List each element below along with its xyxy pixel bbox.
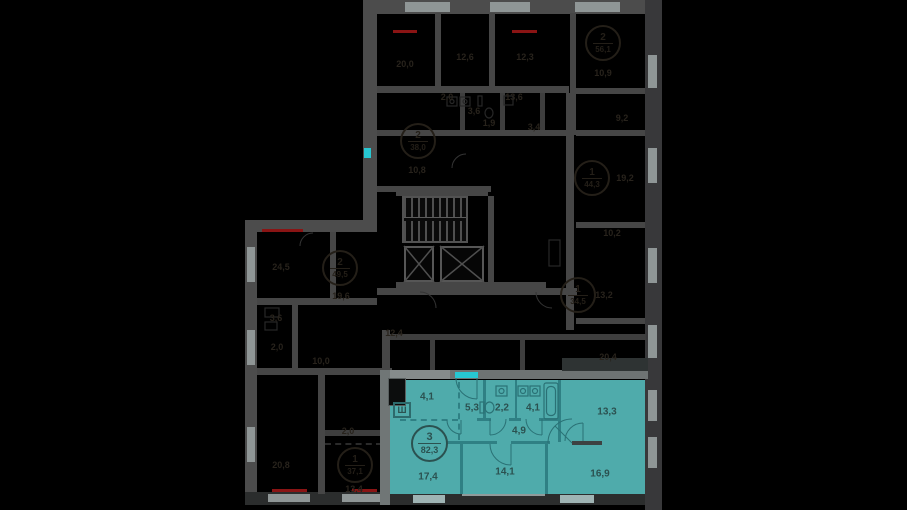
wall-segment xyxy=(292,305,298,371)
window-segment xyxy=(247,330,255,365)
room-area-label-dimmed: 13,6 xyxy=(505,92,523,102)
wall-segment xyxy=(576,318,645,324)
room-area-label-dimmed: 13,4 xyxy=(345,484,363,494)
room-area-label-dimmed: 10,0 xyxy=(312,356,330,366)
wall-segment xyxy=(377,86,569,93)
window-segment xyxy=(648,325,657,358)
apartment-badge-dimmed[interactable]: 134,5 xyxy=(560,277,596,313)
apartment-badge-dimmed[interactable]: 137,1 xyxy=(337,447,373,483)
room-area-label: 5,3 xyxy=(465,403,479,414)
wall-segment xyxy=(447,441,497,444)
room-area-label-dimmed: 24,5 xyxy=(272,262,290,272)
badge-rooms-count: 2 xyxy=(337,257,343,268)
badge-area: 37,1 xyxy=(345,465,365,477)
badge-area: 56,1 xyxy=(593,43,613,55)
wall-segment xyxy=(435,13,441,88)
badge-area: 38,0 xyxy=(408,141,428,153)
wall-segment xyxy=(460,444,463,494)
room-area-label-dimmed: 12,6 xyxy=(456,52,474,62)
badge-rooms-count: 1 xyxy=(352,454,358,465)
badge-area: 49,5 xyxy=(330,268,350,280)
window-segment xyxy=(648,437,657,468)
badge-area: 44,3 xyxy=(582,178,602,190)
room-area-label-dimmed: 12,3 xyxy=(516,52,534,62)
wall-segment xyxy=(363,0,377,232)
badge-rooms-count: 2 xyxy=(415,130,421,141)
room-area-label-dimmed: 3,6 xyxy=(270,313,283,323)
room-area-label-dimmed: 12,4 xyxy=(385,328,403,338)
wardrobe-box: Ш xyxy=(393,402,411,418)
wall-segment xyxy=(509,418,521,421)
apartment-entry-door xyxy=(455,372,478,378)
wall-segment xyxy=(460,93,465,132)
window-segment xyxy=(648,248,657,283)
wall-dashed xyxy=(458,382,460,440)
wall-dashed xyxy=(325,443,382,445)
window-segment xyxy=(342,494,382,502)
wall-segment xyxy=(545,444,548,494)
elevator-shaft xyxy=(440,246,484,282)
wall-segment xyxy=(483,380,486,420)
window-segment xyxy=(268,494,310,502)
badge-rooms-count: 2 xyxy=(600,32,606,43)
room-area-label-dimmed: 19,6 xyxy=(332,291,350,301)
wall-segment xyxy=(539,418,558,421)
room-area-label-dimmed: 19,2 xyxy=(616,173,634,183)
badge-area: 82,3 xyxy=(418,443,442,456)
wall-dashed xyxy=(400,419,458,421)
room-area-label-dimmed: 10,2 xyxy=(603,228,621,238)
room-area-label-dimmed: 20,8 xyxy=(272,460,290,470)
window-segment xyxy=(405,2,450,12)
apartment-badge-dimmed[interactable]: 144,3 xyxy=(574,160,610,196)
wall-segment xyxy=(257,298,377,305)
apartment-badge[interactable]: 3 82,3 xyxy=(411,425,448,462)
room-area-label: 2,2 xyxy=(495,403,509,414)
wall-segment xyxy=(430,340,435,370)
staircase-landing xyxy=(404,217,466,221)
wall-segment xyxy=(257,368,392,375)
wall-segment xyxy=(390,334,646,340)
room-area-label-dimmed: 1,9 xyxy=(483,118,496,128)
elevator-shaft xyxy=(404,246,434,282)
wardrobe-label: Ш xyxy=(397,405,406,415)
room-area-label-dimmed: 3,4 xyxy=(528,122,541,132)
room-area-label-dimmed: 3,6 xyxy=(468,106,481,116)
window-segment xyxy=(648,148,657,183)
room-area-label-dimmed: 13,2 xyxy=(595,290,613,300)
window-segment xyxy=(648,55,657,88)
room-area-label-dimmed: 10,8 xyxy=(408,165,426,175)
room-area-label: 4,9 xyxy=(512,426,526,437)
room-area-label: 16,9 xyxy=(590,469,609,480)
badge-rooms-count: 1 xyxy=(575,284,581,295)
radiator-mark xyxy=(393,30,417,33)
room-area-label: 17,4 xyxy=(418,472,437,483)
window-segment xyxy=(247,247,255,282)
radiator-mark xyxy=(512,30,537,33)
apartment-badge-dimmed[interactable]: 238,0 xyxy=(400,123,436,159)
apartment-badge-dimmed[interactable]: 256,1 xyxy=(585,25,621,61)
window-segment xyxy=(413,495,445,503)
wall-segment xyxy=(515,380,517,420)
window-segment xyxy=(648,390,657,421)
room-area-label: 4,1 xyxy=(420,392,434,403)
room-area-label: 4,1 xyxy=(526,403,540,414)
room-area-label-dimmed: 2,0 xyxy=(271,342,284,352)
wall-segment xyxy=(558,380,561,442)
wall-segment xyxy=(540,93,545,132)
room-area-label: 14,1 xyxy=(495,467,514,478)
wall-segment xyxy=(489,13,495,88)
room-area-label-dimmed: 9,2 xyxy=(616,113,629,123)
room-area-label-dimmed: 2,0 xyxy=(342,426,355,436)
radiator-mark xyxy=(272,489,307,492)
room-area-label-dimmed: 2,0 xyxy=(441,92,454,102)
window-segment xyxy=(560,495,594,503)
radiator-mark xyxy=(262,229,303,232)
window-segment xyxy=(247,427,255,462)
entry-marker xyxy=(364,148,371,158)
wall-segment xyxy=(477,418,491,421)
badge-rooms-count: 3 xyxy=(426,431,432,443)
wall-segment xyxy=(572,441,602,445)
room-area-label-dimmed: 10,9 xyxy=(594,68,612,78)
wall-segment xyxy=(488,196,494,288)
room-area-label-dimmed: 20,0 xyxy=(396,59,414,69)
window-segment xyxy=(575,2,620,12)
room-area-label: 13,3 xyxy=(597,407,616,418)
window-segment xyxy=(462,494,545,496)
badge-rooms-count: 1 xyxy=(589,167,595,178)
window-segment xyxy=(490,2,530,12)
floor-plan: Ш 3 82,3 xyxy=(0,0,907,510)
apartment-badge-dimmed[interactable]: 249,5 xyxy=(322,250,358,286)
wall-segment xyxy=(576,88,645,94)
wall-segment xyxy=(576,130,645,136)
badge-area: 34,5 xyxy=(568,295,588,307)
room-area-label-dimmed: 20,4 xyxy=(599,352,617,362)
wall-segment xyxy=(377,288,577,295)
wall-segment xyxy=(318,375,325,494)
wall-segment xyxy=(520,340,525,370)
